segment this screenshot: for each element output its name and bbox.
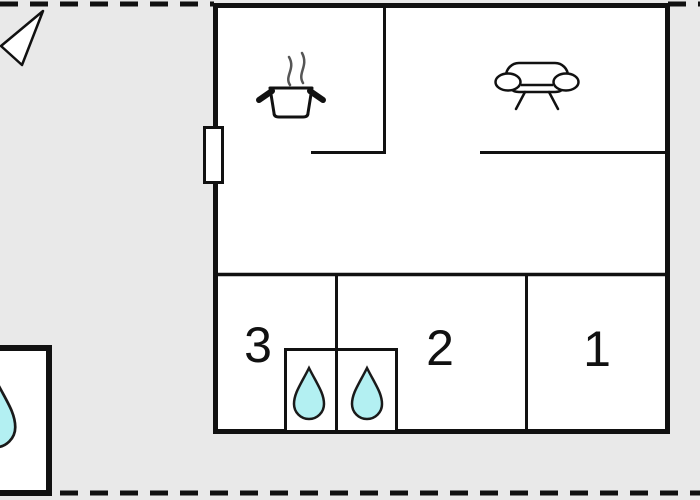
sofa-armrest-right <box>554 74 579 91</box>
main-floor-plan: 3 2 1 <box>205 6 668 432</box>
window-icon <box>205 128 223 183</box>
floor-plan-image: 3 2 1 <box>0 0 700 500</box>
north-arrow-icon <box>1 11 43 65</box>
room-label-2: 2 <box>426 320 454 376</box>
room-label-3: 3 <box>244 317 272 373</box>
room-label-1: 1 <box>583 321 611 377</box>
sofa-armrest-left <box>496 74 521 91</box>
floor-plan-canvas: 3 2 1 <box>0 0 700 500</box>
annex-building <box>0 348 49 493</box>
pot-body <box>270 88 312 117</box>
